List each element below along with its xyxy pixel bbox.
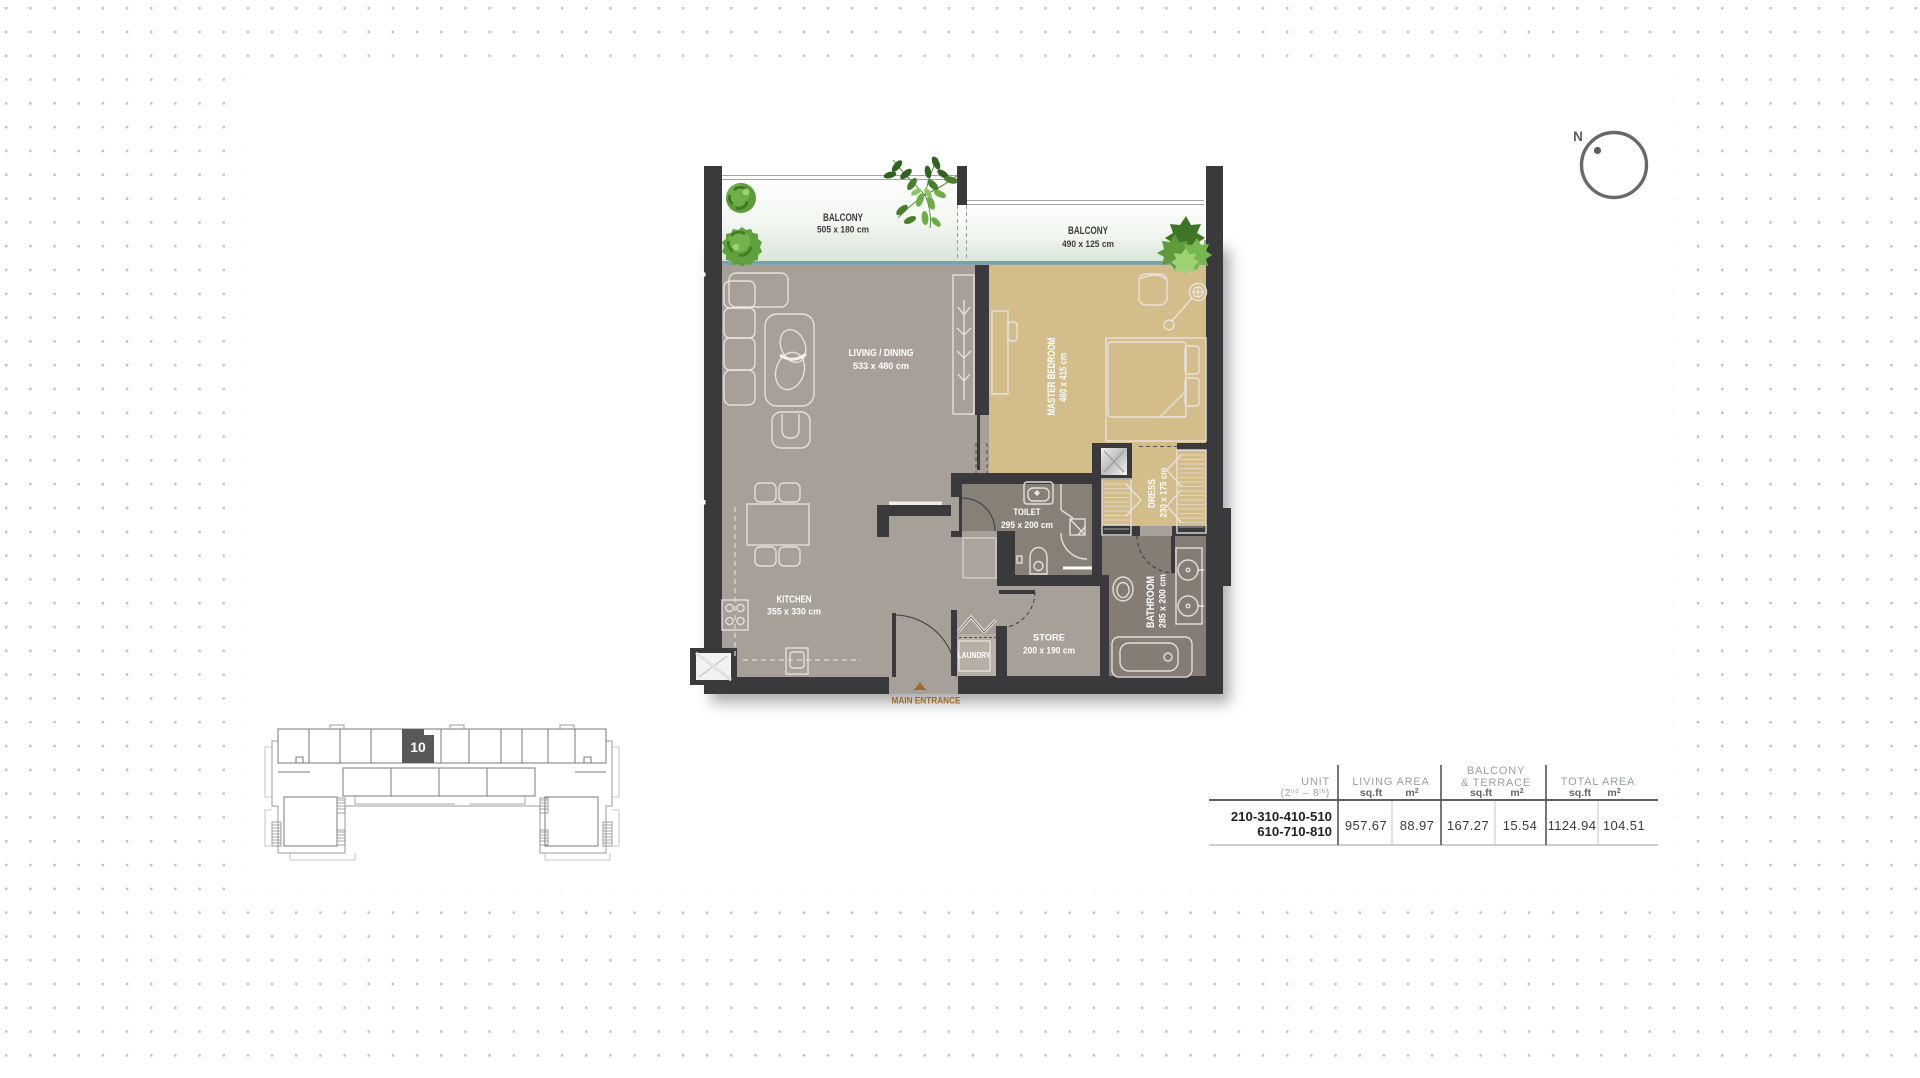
svg-text:104.51: 104.51	[1603, 818, 1645, 833]
svg-text:230 x 175 cm: 230 x 175 cm	[1159, 468, 1169, 518]
svg-text:BALCONY: BALCONY	[823, 212, 863, 224]
svg-text:MASTER BEDROOM: MASTER BEDROOM	[1046, 338, 1058, 416]
svg-text:STORE: STORE	[1033, 633, 1066, 644]
svg-text:490 x 125 cm: 490 x 125 cm	[1062, 239, 1114, 250]
svg-text:355 x 330 cm: 355 x 330 cm	[767, 607, 821, 617]
svg-text:sq.ft: sq.ft	[1470, 787, 1493, 799]
svg-text:88.97: 88.97	[1400, 818, 1435, 833]
svg-text:210-310-410-510: 210-310-410-510	[1231, 809, 1332, 824]
svg-text:285 x 200 cm: 285 x 200 cm	[1158, 574, 1169, 628]
svg-text:610-710-810: 610-710-810	[1257, 824, 1332, 839]
svg-text:N: N	[1573, 129, 1583, 144]
svg-text:1124.94: 1124.94	[1548, 818, 1597, 833]
svg-text:LAUNDRY: LAUNDRY	[958, 650, 991, 660]
svg-text:10: 10	[410, 739, 426, 755]
svg-text:200 x 190 cm: 200 x 190 cm	[1023, 646, 1075, 656]
svg-text:533 x 480 cm: 533 x 480 cm	[853, 361, 909, 371]
svg-text:BALCONY: BALCONY	[1467, 765, 1525, 777]
svg-text:295 x 200 cm: 295 x 200 cm	[1001, 520, 1053, 530]
svg-text:BATHROOM: BATHROOM	[1145, 576, 1157, 628]
svg-text:957.67: 957.67	[1345, 818, 1387, 833]
svg-text:DRESS: DRESS	[1147, 479, 1158, 508]
svg-text:167.27: 167.27	[1447, 818, 1489, 833]
svg-text:505 x 180 cm: 505 x 180 cm	[817, 225, 869, 236]
svg-text:KITCHEN: KITCHEN	[777, 595, 812, 606]
svg-text:UNIT: UNIT	[1301, 776, 1330, 788]
svg-text:MAIN ENTRANCE: MAIN ENTRANCE	[892, 696, 961, 706]
svg-text:LIVING / DINING: LIVING / DINING	[849, 348, 914, 359]
svg-text:BALCONY: BALCONY	[1068, 225, 1108, 237]
svg-text:sq.ft: sq.ft	[1360, 787, 1383, 799]
svg-text:15.54: 15.54	[1503, 818, 1538, 833]
svg-text:sq.ft: sq.ft	[1569, 787, 1592, 799]
svg-text:460 x 415 cm: 460 x 415 cm	[1059, 353, 1070, 402]
svg-text:TOILET: TOILET	[1014, 507, 1041, 518]
